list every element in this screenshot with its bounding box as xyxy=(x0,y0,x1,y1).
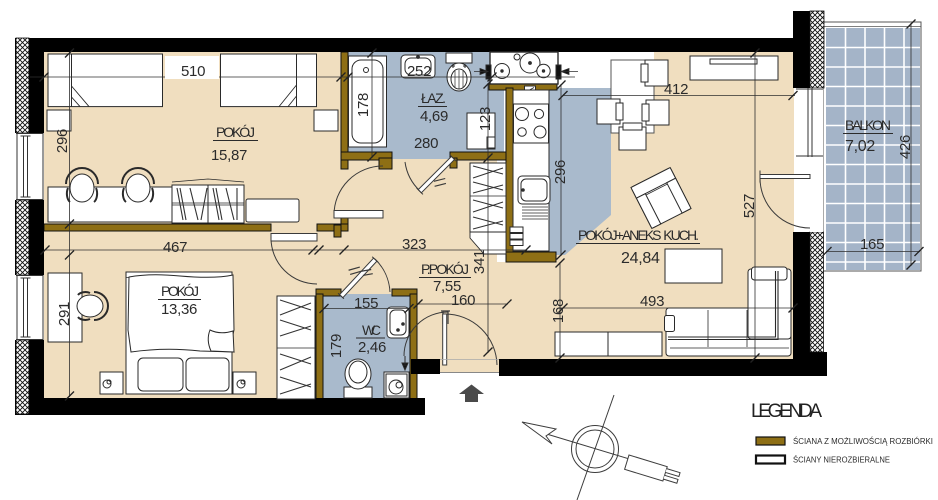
svg-text:168: 168 xyxy=(550,299,567,323)
svg-text:POKÓJ+ANEKS KUCH.: POKÓJ+ANEKS KUCH. xyxy=(578,227,699,243)
svg-text:WC: WC xyxy=(362,322,381,338)
svg-text:13,36: 13,36 xyxy=(161,301,197,318)
svg-text:4,69: 4,69 xyxy=(420,108,448,125)
svg-text:15,87: 15,87 xyxy=(211,147,247,164)
svg-text:178: 178 xyxy=(355,93,372,117)
svg-text:P.POKÓJ: P.POKÓJ xyxy=(421,261,469,277)
svg-text:527: 527 xyxy=(741,194,758,218)
svg-text:165: 165 xyxy=(860,236,884,253)
svg-text:ŁAZ.: ŁAZ. xyxy=(421,90,446,106)
svg-text:341: 341 xyxy=(471,250,488,274)
svg-text:323: 323 xyxy=(402,236,426,253)
svg-text:ŚCIANA Z MOŻLIWOŚCIĄ ROZBIÓ: ŚCIANA Z MOŻLIWOŚCIĄ ROZBIÓRKI xyxy=(793,437,933,446)
svg-text:BALKON: BALKON xyxy=(845,117,891,133)
svg-text:296: 296 xyxy=(54,129,71,153)
svg-text:2,46: 2,46 xyxy=(358,339,386,356)
svg-text:7,02: 7,02 xyxy=(845,138,875,155)
svg-text:24,84: 24,84 xyxy=(621,250,660,267)
svg-text:296: 296 xyxy=(552,160,569,184)
svg-text:123: 123 xyxy=(477,107,494,131)
svg-text:510: 510 xyxy=(181,63,205,80)
svg-text:412: 412 xyxy=(664,81,688,98)
svg-text:POKÓJ: POKÓJ xyxy=(161,283,199,299)
svg-text:291: 291 xyxy=(56,302,73,326)
svg-text:493: 493 xyxy=(640,293,664,310)
svg-text:179: 179 xyxy=(328,334,345,358)
svg-text:426: 426 xyxy=(897,135,914,159)
svg-text:POKÓJ: POKÓJ xyxy=(216,124,255,140)
svg-text:155: 155 xyxy=(354,295,378,312)
svg-text:ŚCIANY NIEROZBIERALNE: ŚCIANY NIEROZBIERALNE xyxy=(793,456,890,465)
svg-text:7,55: 7,55 xyxy=(433,278,461,295)
svg-text:LEGENDA: LEGENDA xyxy=(751,401,822,422)
svg-text:280: 280 xyxy=(414,135,438,152)
svg-text:252: 252 xyxy=(407,63,431,80)
svg-text:467: 467 xyxy=(163,239,187,256)
